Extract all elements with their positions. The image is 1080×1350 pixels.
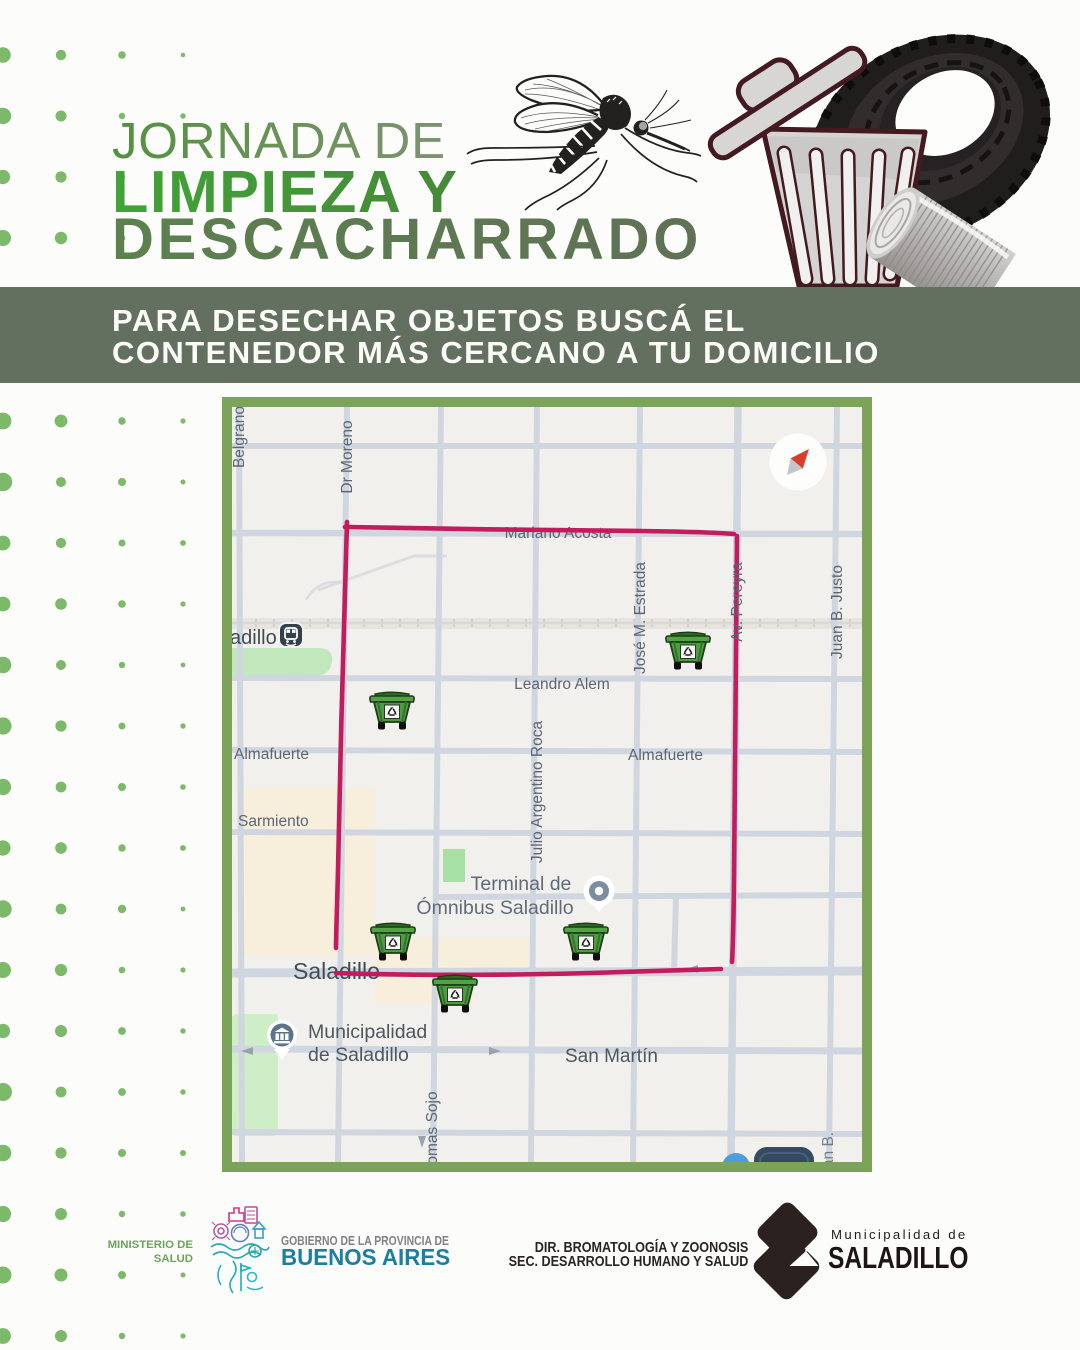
svg-text:omas Sojo: omas Sojo xyxy=(424,1091,441,1162)
svg-text:Julio Argentino Roca: Julio Argentino Roca xyxy=(529,721,546,864)
svg-text:Municipalidad: Municipalidad xyxy=(308,1021,427,1043)
svg-text:Terminal de: Terminal de xyxy=(471,873,572,895)
svg-text:Ómnibus Saladillo: Ómnibus Saladillo xyxy=(416,896,573,919)
svg-text:Belgrano: Belgrano xyxy=(232,407,248,468)
svg-text:de Saladillo: de Saladillo xyxy=(308,1044,409,1066)
svg-text:San Martín: San Martín xyxy=(565,1046,658,1067)
svg-text:José M. Estrada: José M. Estrada xyxy=(632,562,649,674)
svg-text:adillo: adillo xyxy=(232,627,277,649)
svg-text:Leandro Alem: Leandro Alem xyxy=(514,676,610,693)
svg-text:Almafuerte: Almafuerte xyxy=(628,747,703,764)
svg-text:Av. Pereyra: Av. Pereyra xyxy=(729,562,746,642)
svg-text:Sarmiento: Sarmiento xyxy=(238,813,309,830)
svg-text:Juan B. Justo: Juan B. Justo xyxy=(829,565,846,659)
svg-text:an B.: an B. xyxy=(820,1132,837,1162)
svg-text:Almafuerte: Almafuerte xyxy=(234,746,309,763)
svg-text:Dr Moreno: Dr Moreno xyxy=(339,420,356,493)
